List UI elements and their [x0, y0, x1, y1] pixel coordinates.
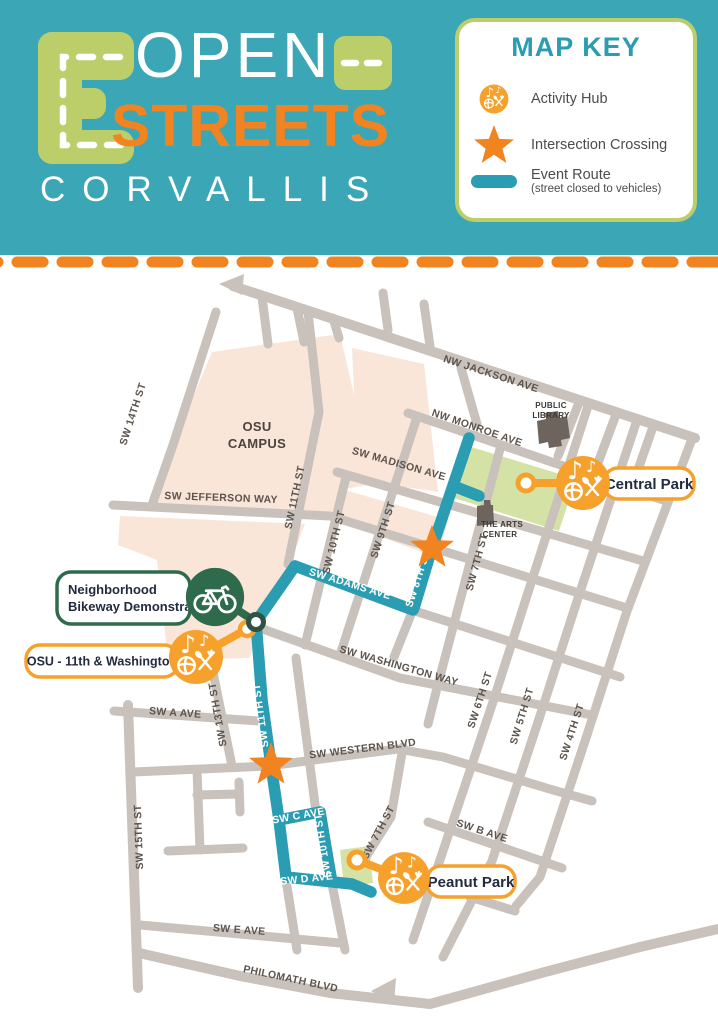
central-park-dot: [518, 475, 534, 491]
central-park-callout: Central Park: [604, 468, 694, 499]
bikeway-hub: [186, 568, 244, 626]
key-label: Activity Hub: [531, 91, 608, 107]
street-campus-stub-1: [262, 297, 268, 344]
street-campus-stub-3: [333, 318, 339, 338]
svg-text:♪: ♪: [389, 852, 404, 880]
bikeway-callout-label: Neighborhood: [68, 582, 157, 597]
svg-text:♪: ♪: [567, 456, 583, 485]
street-label: PUBLIC: [535, 401, 567, 410]
logo-word-open: OPEN: [135, 18, 332, 92]
svg-text:♪: ♪: [180, 630, 196, 659]
svg-text:♪: ♪: [496, 86, 501, 96]
svg-text:♪: ♪: [199, 631, 209, 650]
street-top-stub-2: [424, 304, 430, 346]
osu-11th-washington-callout-label: OSU - 11th & Washington: [27, 655, 177, 669]
street-court-street-3: [197, 794, 238, 795]
bikeway-junction-dot: [249, 615, 264, 630]
open-streets-corvallis-poster: NW JACKSON AVENW MONROE AVEPUBLICLIBRARY…: [0, 0, 718, 1023]
key-sublabel: (street closed to vehicles): [531, 183, 661, 195]
logo-word-streets: STREETS: [111, 92, 390, 160]
street-sw-8th-st-south: [394, 612, 412, 657]
street-philomath-blvd: [139, 929, 718, 1004]
osu-11th-washington-callout: OSU - 11th & Washington: [26, 645, 178, 677]
header-banner: OPEN STREETS CORVALLIS MAP KEY ♪ ♪ Activ…: [0, 0, 718, 255]
central-park-callout-label: Central Park: [605, 476, 694, 493]
key-row-event-route: Event Route (street closed to vehicles): [471, 167, 661, 195]
street-cd-rung-east: [470, 897, 515, 911]
logo-word-corvallis: CORVALLIS: [40, 170, 386, 210]
map-key: MAP KEY ♪ ♪ Activity Hub Intersection Cr…: [455, 18, 697, 222]
key-label: Event Route: [531, 167, 661, 183]
street-label: LIBRARY: [532, 411, 570, 420]
street-label: OSU: [242, 419, 271, 434]
central-park-hub: ♪ ♪: [556, 456, 610, 510]
street-label: CENTER: [483, 530, 518, 539]
map-key-title: MAP KEY: [459, 32, 693, 63]
event-route-icon: [471, 175, 517, 188]
bikeway-callout-box: [57, 572, 190, 624]
street-label: CAMPUS: [228, 436, 286, 451]
svg-text:♪: ♪: [407, 853, 417, 871]
peanut-park-hub: ♪ ♪: [378, 852, 430, 904]
activity-hub-icon: ♪ ♪: [471, 78, 517, 120]
street-label: SW 15TH ST: [132, 804, 146, 870]
key-row-intersection: Intersection Crossing: [471, 123, 667, 167]
street-sw-10th-st-mid: [296, 658, 316, 812]
key-row-activity-hub: ♪ ♪ Activity Hub: [471, 78, 608, 120]
jackson-arrow: [219, 274, 244, 295]
street-court-street-2: [168, 848, 243, 851]
street-label: SW 14TH ST: [117, 381, 149, 447]
street-label: NW JACKSON AVE: [442, 353, 540, 395]
dashed-divider: [0, 250, 718, 274]
peanut-park-callout: Peanut Park: [427, 866, 515, 897]
osu-11th-washington-hub: ♪ ♪: [169, 630, 223, 684]
street-label: THE ARTS: [481, 520, 523, 529]
street-court-street-4: [239, 782, 240, 812]
svg-text:♪: ♪: [586, 457, 596, 476]
street-label: SW A AVE: [149, 705, 202, 721]
street-library-street-2: [596, 412, 617, 468]
peanut-park-callout-label: Peanut Park: [428, 874, 515, 891]
key-label: Intersection Crossing: [531, 137, 667, 153]
street-monroe-stub: [461, 368, 477, 424]
peanut-park-dot: [349, 852, 365, 868]
intersection-star-icon: [471, 123, 517, 167]
street-block-icon: [334, 36, 392, 95]
street-court-street-1: [197, 770, 200, 850]
street-top-stub-1: [383, 293, 388, 330]
